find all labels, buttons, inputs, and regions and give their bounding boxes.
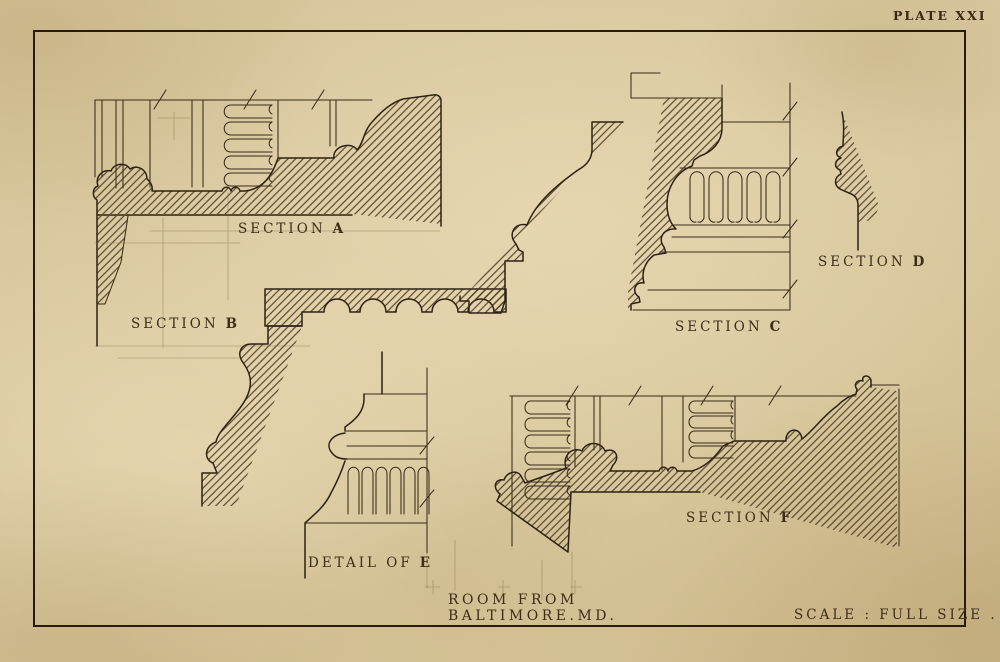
label-section-f: SECTIONF <box>686 510 791 526</box>
label-section-d-word: SECTION <box>818 254 906 270</box>
label-section-c-word: SECTION <box>675 319 763 335</box>
label-section-d: SECTIOND <box>818 254 925 270</box>
label-section-f-word: SECTION <box>686 510 774 526</box>
section-c-drawing <box>628 73 797 310</box>
caption-line1: ROOM FROM <box>448 592 617 608</box>
label-section-c: SECTIONC <box>675 319 781 335</box>
plate-number: PLATE XXI <box>893 8 987 23</box>
crown-profile-drawing <box>460 122 623 313</box>
section-d-drawing <box>836 112 880 250</box>
label-section-a-word: SECTION <box>238 221 326 237</box>
label-section-b-word: SECTION <box>131 316 219 332</box>
label-detail-e-letter: E <box>420 555 431 571</box>
label-section-c-letter: C <box>770 319 782 335</box>
label-section-a: SECTIONA <box>238 221 344 237</box>
scale-note: SCALE : FULL SIZE . <box>794 607 998 623</box>
label-section-f-letter: F <box>781 510 792 526</box>
label-detail-e: DETAIL OFE <box>308 555 431 571</box>
caption-line2: BALTIMORE.MD. <box>448 608 617 624</box>
label-detail-e-word: DETAIL OF <box>308 555 413 571</box>
label-section-b-letter: B <box>226 316 238 332</box>
label-section-b: SECTIONB <box>131 316 238 332</box>
detail-e-drawing <box>305 352 434 578</box>
label-section-d-letter: D <box>913 254 926 270</box>
section-b-drawing <box>202 289 506 506</box>
label-section-a-letter: A <box>333 221 344 237</box>
plate-caption: ROOM FROM BALTIMORE.MD. <box>448 592 617 624</box>
